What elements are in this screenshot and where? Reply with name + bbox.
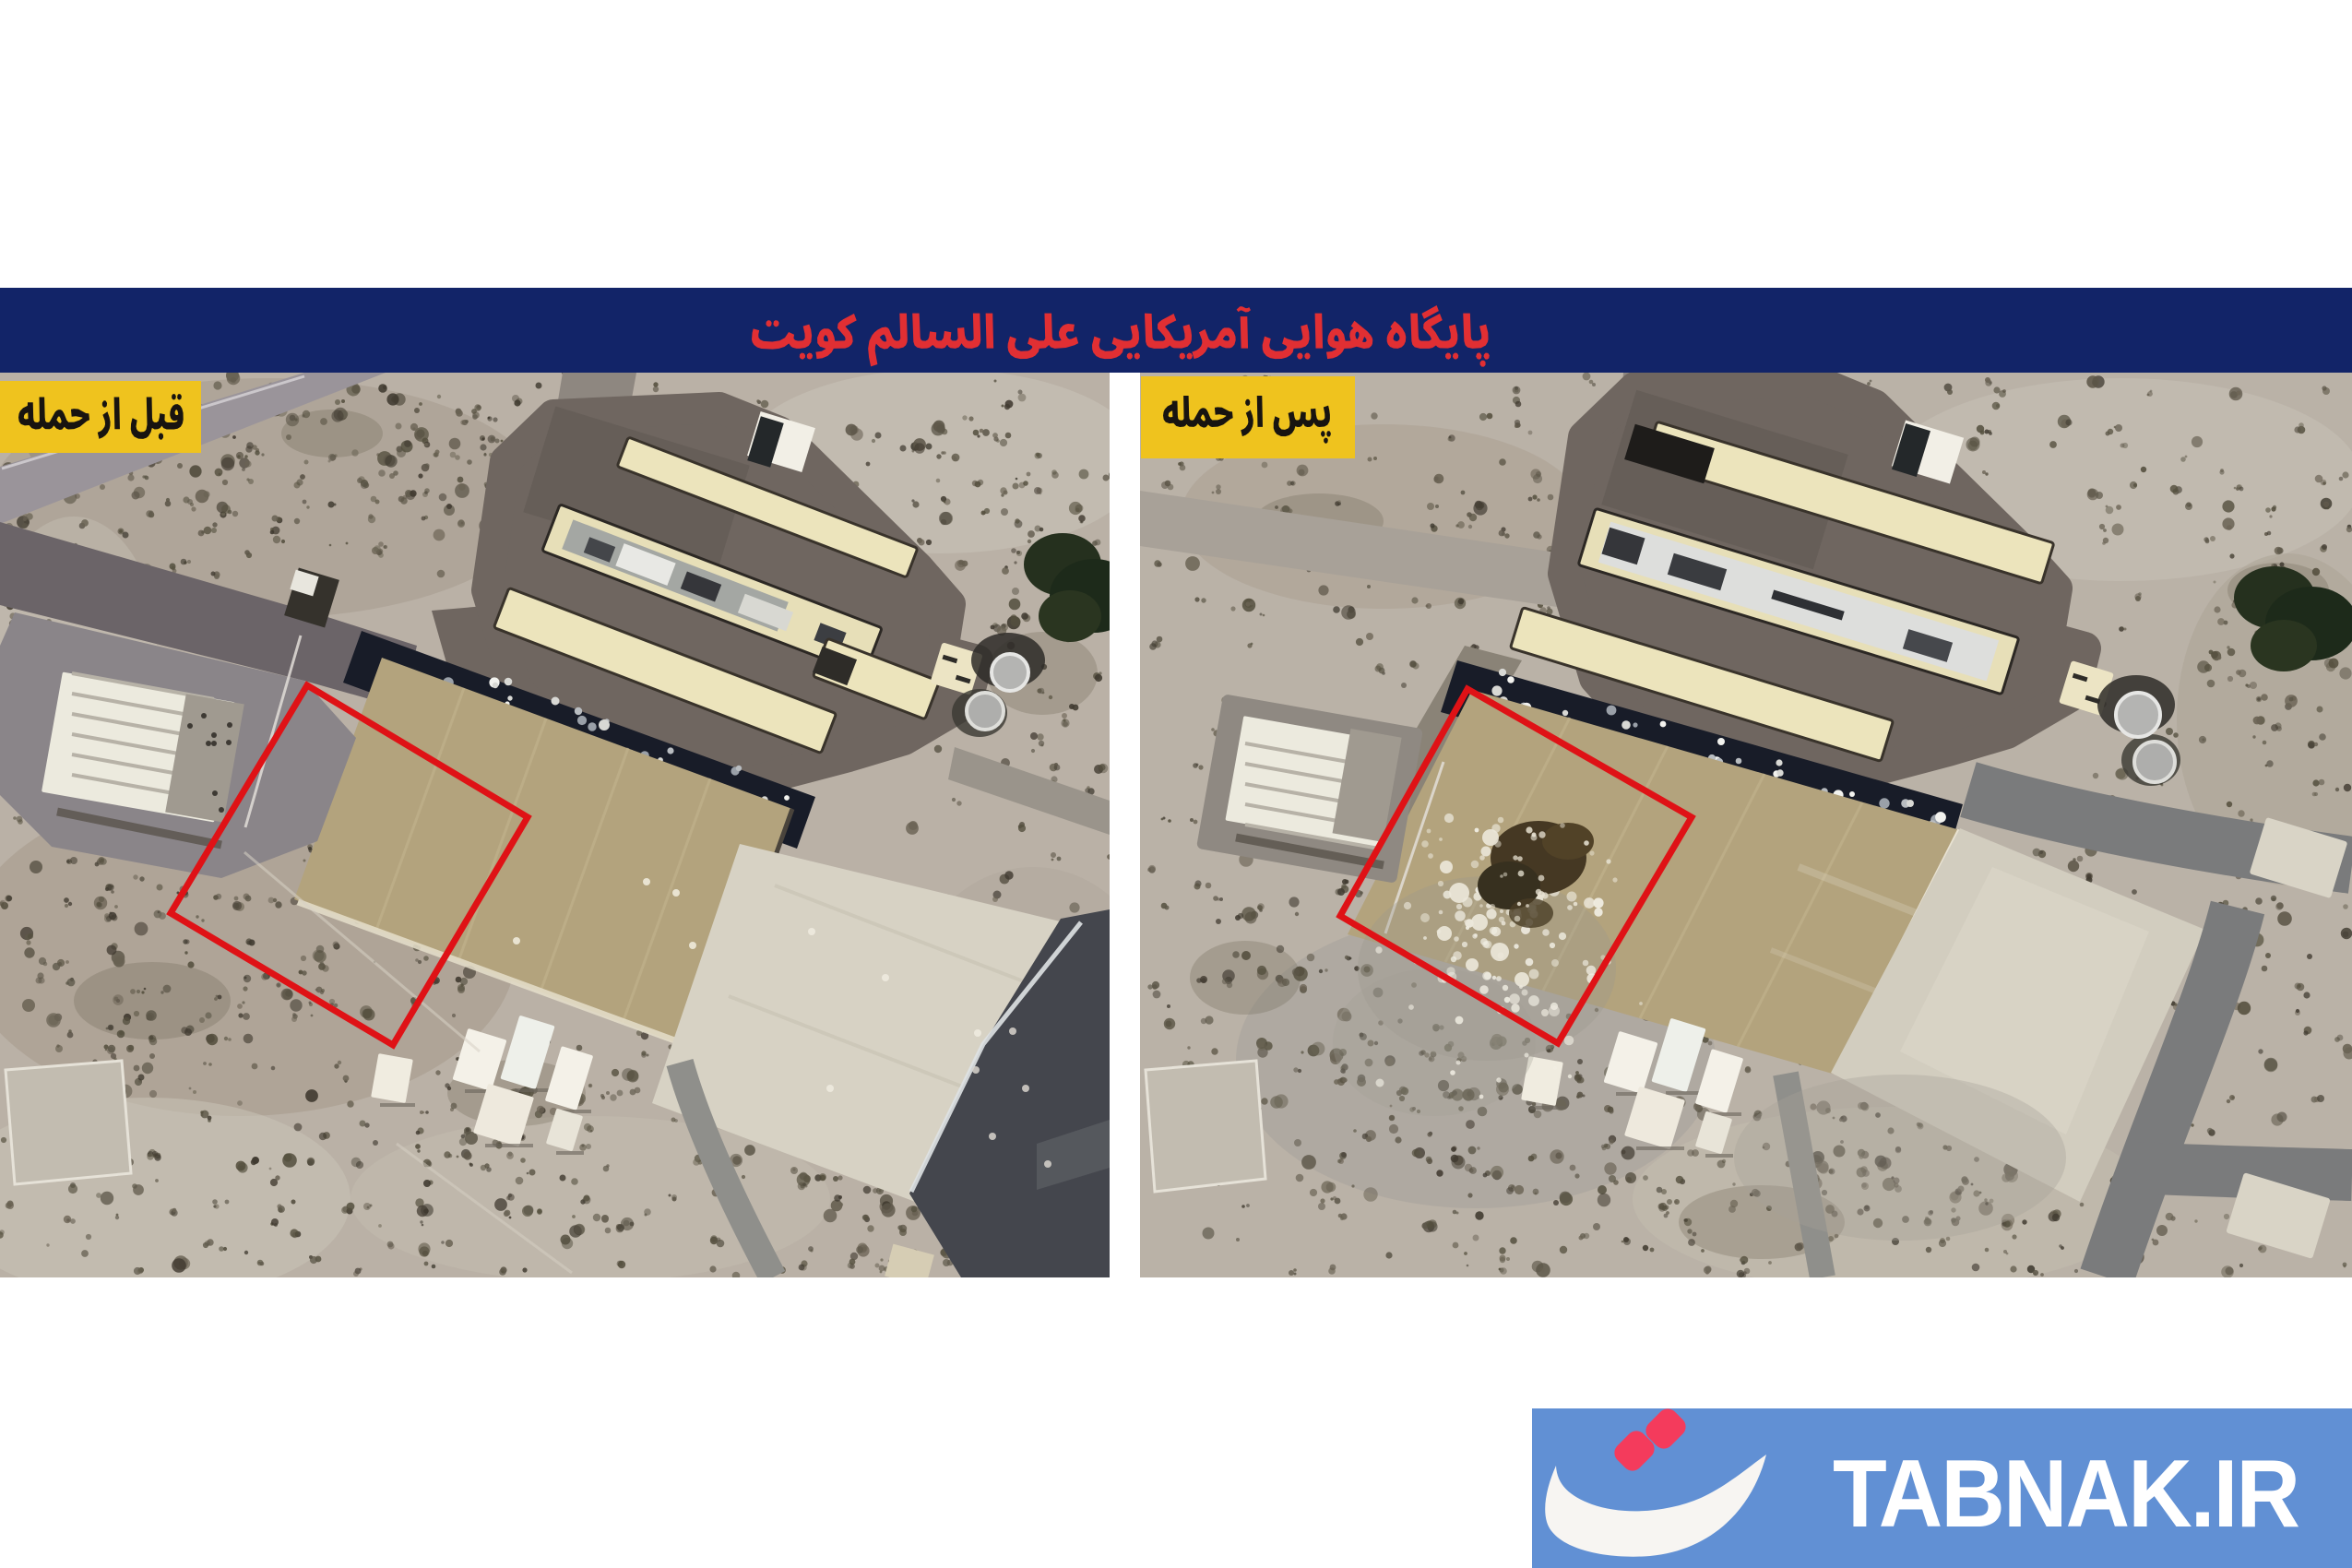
svg-text:TABNAK.IR: TABNAK.IR [1833, 1441, 2299, 1548]
